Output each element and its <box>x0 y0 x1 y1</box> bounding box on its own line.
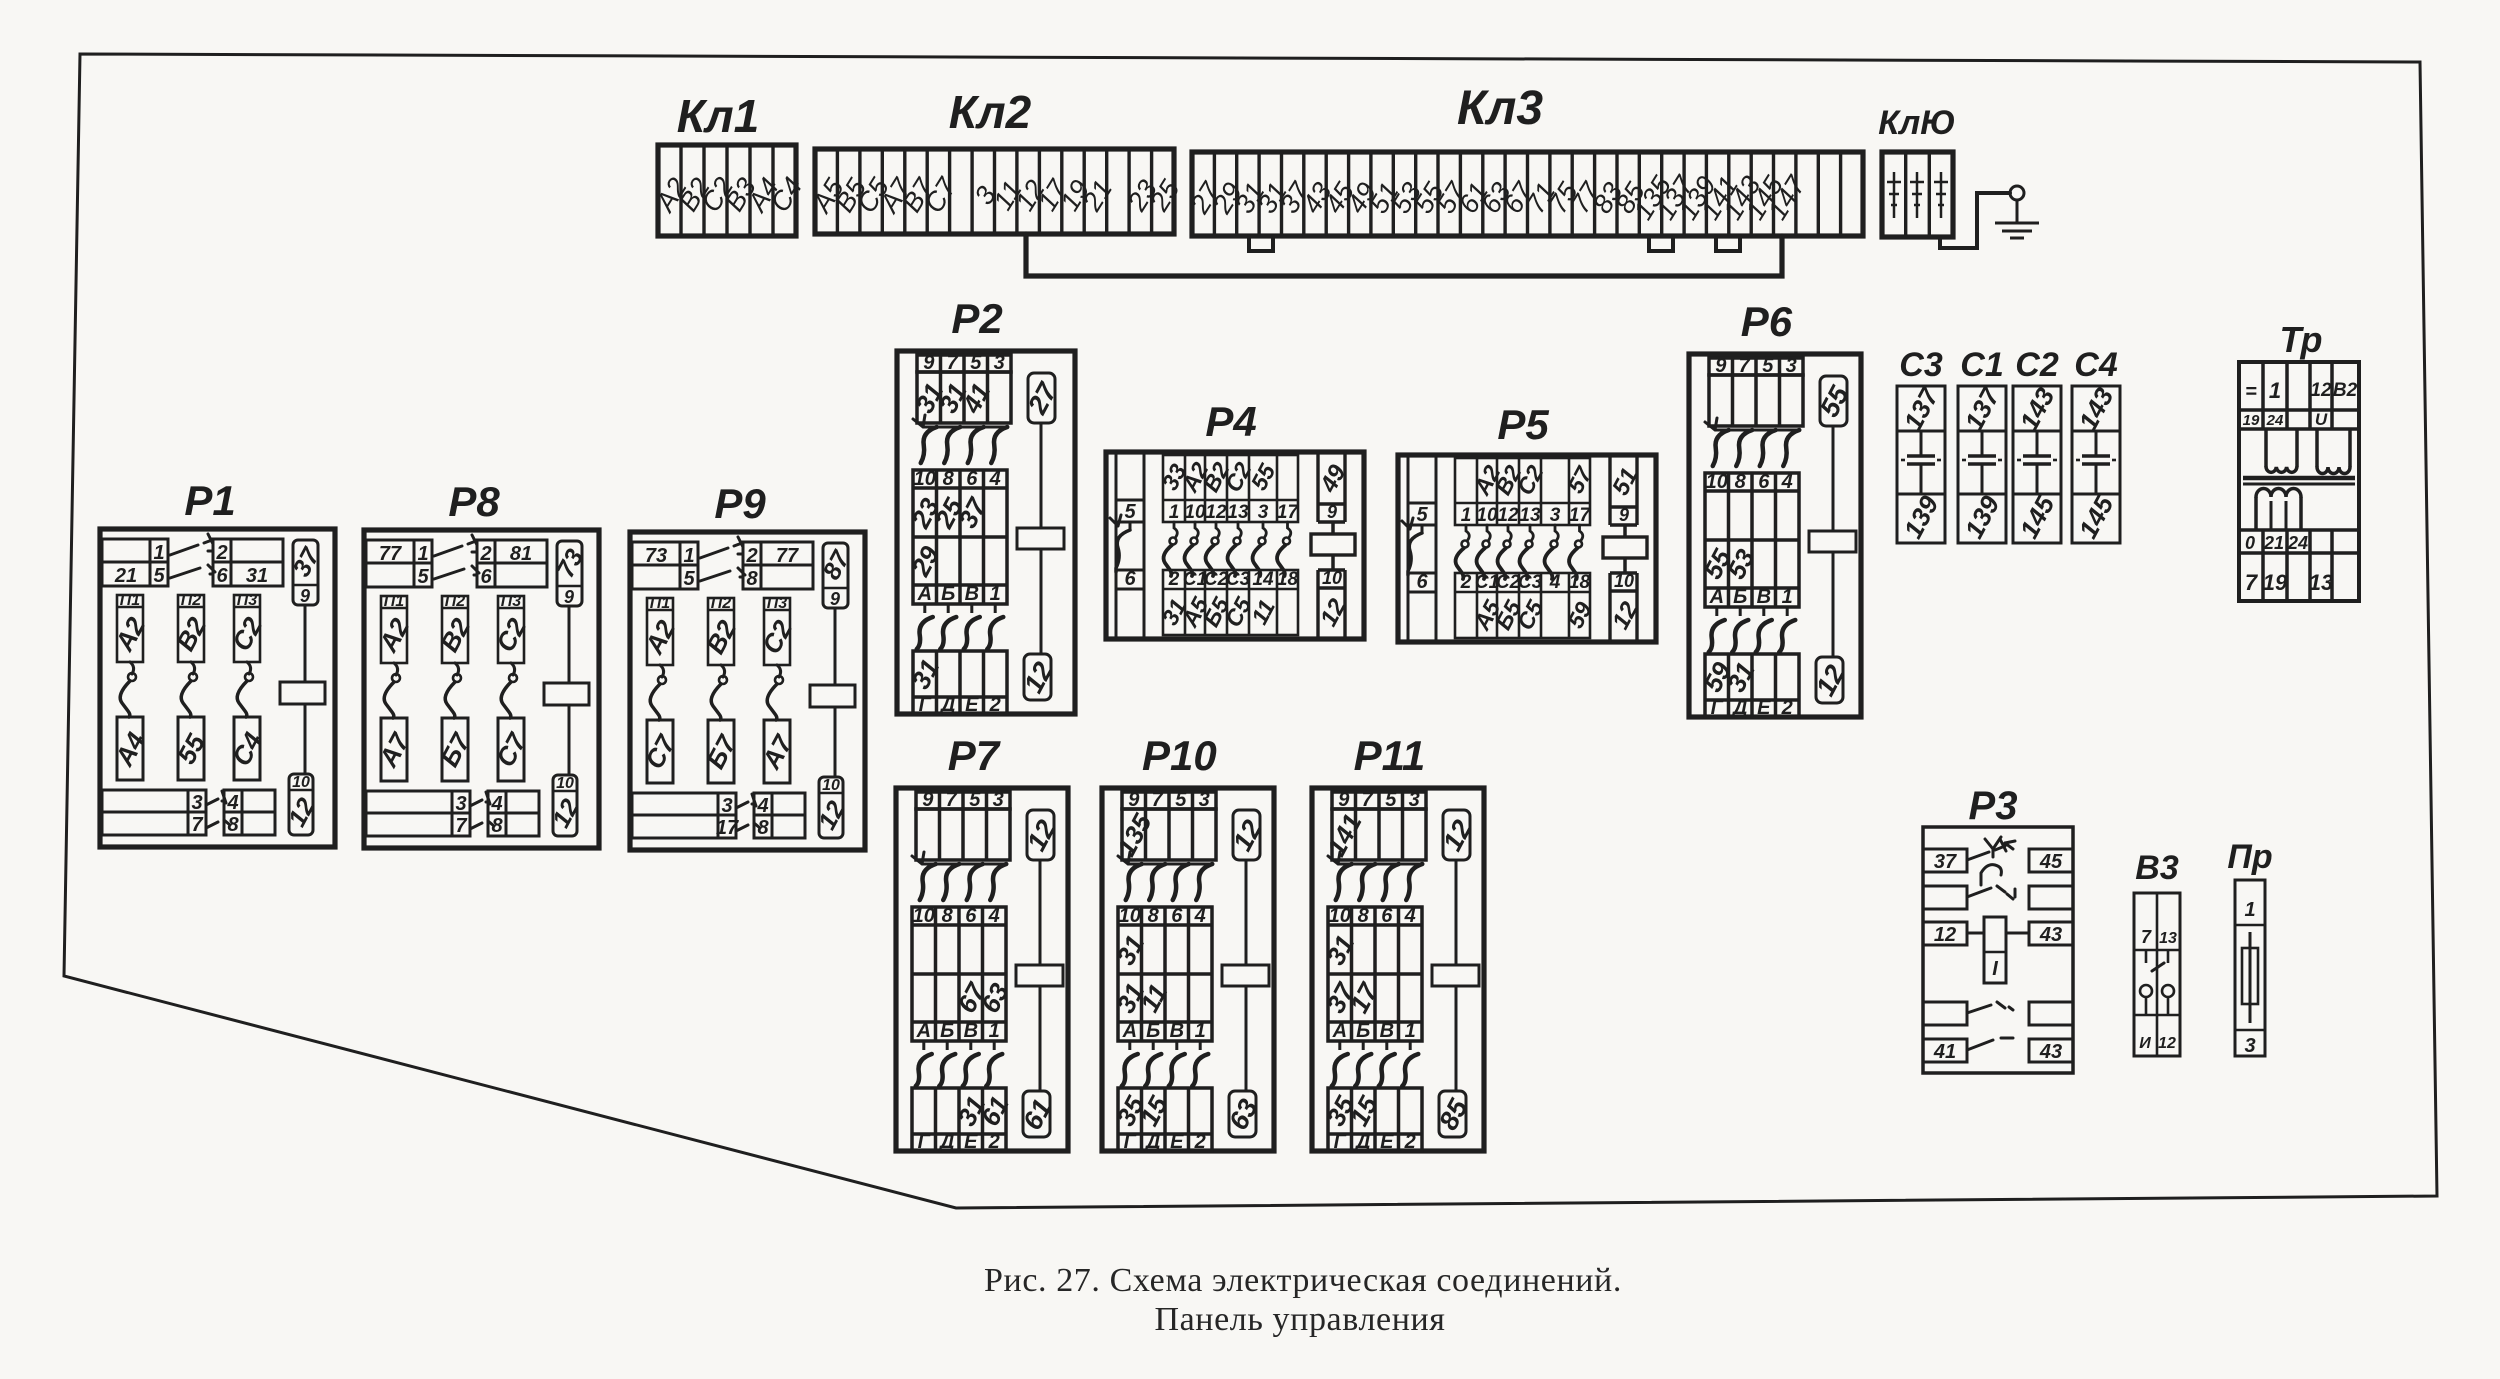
svg-text:3: 3 <box>191 792 202 814</box>
svg-text:Е: Е <box>964 1131 978 1153</box>
svg-text:7: 7 <box>2141 927 2152 947</box>
svg-text:31: 31 <box>246 565 268 587</box>
svg-text:8: 8 <box>943 468 955 490</box>
svg-text:А: А <box>1709 586 1724 608</box>
svg-text:Е: Е <box>1170 1131 1184 1153</box>
svg-text:12: 12 <box>1934 924 1956 946</box>
svg-text:13: 13 <box>1227 502 1249 523</box>
svg-text:19: 19 <box>2263 570 2288 595</box>
svg-text:12: 12 <box>1205 502 1227 523</box>
svg-text:73: 73 <box>645 545 667 567</box>
svg-text:5: 5 <box>153 565 165 587</box>
svg-text:3: 3 <box>455 793 466 815</box>
svg-text:Г: Г <box>1334 1131 1348 1153</box>
svg-text:1: 1 <box>1461 505 1472 526</box>
svg-text:Р10: Р10 <box>1142 732 1217 779</box>
svg-text:24: 24 <box>2287 533 2308 553</box>
svg-text:17: 17 <box>716 817 739 839</box>
svg-text:12: 12 <box>2310 380 2332 401</box>
svg-text:Е: Е <box>965 694 979 716</box>
svg-text:10: 10 <box>1119 905 1141 927</box>
svg-text:П3: П3 <box>501 593 522 610</box>
svg-text:Р3: Р3 <box>1969 784 2018 828</box>
svg-text:10: 10 <box>556 775 574 792</box>
svg-text:8: 8 <box>1148 905 1160 927</box>
svg-text:1: 1 <box>683 545 694 567</box>
svg-text:4: 4 <box>226 792 238 814</box>
svg-text:41: 41 <box>1933 1041 1956 1063</box>
svg-text:18: 18 <box>1277 569 1299 590</box>
svg-text:Д: Д <box>1354 1131 1370 1153</box>
svg-text:2: 2 <box>215 542 227 564</box>
svg-text:В: В <box>965 583 979 605</box>
svg-text:В: В <box>1380 1020 1394 1042</box>
svg-text:0: 0 <box>2245 533 2255 553</box>
svg-text:Р5: Р5 <box>1497 401 1549 448</box>
svg-text:Г: Г <box>1124 1131 1138 1153</box>
svg-text:Р8: Р8 <box>448 478 500 525</box>
svg-text:С3: С3 <box>1899 346 1943 384</box>
svg-text:П3: П3 <box>237 592 258 609</box>
svg-text:2: 2 <box>988 1131 1000 1153</box>
svg-text:4: 4 <box>490 793 502 815</box>
svg-text:Р9: Р9 <box>714 480 766 527</box>
svg-text:Д: Д <box>1731 697 1747 719</box>
svg-text:21: 21 <box>114 565 137 587</box>
svg-text:П1: П1 <box>120 592 141 609</box>
svg-text:10: 10 <box>1184 502 1206 523</box>
svg-text:8: 8 <box>746 568 758 590</box>
svg-text:3: 3 <box>2244 1035 2255 1057</box>
svg-text:I: I <box>1992 958 1998 980</box>
svg-text:В2: В2 <box>2333 380 2358 401</box>
svg-text:4: 4 <box>1549 572 1561 593</box>
svg-text:П1: П1 <box>650 595 671 612</box>
svg-text:77: 77 <box>776 545 799 567</box>
svg-text:Кл3: Кл3 <box>1457 82 1543 135</box>
svg-text:1: 1 <box>153 542 164 564</box>
svg-text:Тр: Тр <box>2279 319 2322 360</box>
svg-text:Е: Е <box>1380 1131 1394 1153</box>
svg-text:В: В <box>1170 1020 1184 1042</box>
svg-text:1: 1 <box>2244 899 2255 921</box>
svg-text:Б: Б <box>1356 1020 1370 1042</box>
svg-text:Б: Б <box>940 1020 954 1042</box>
svg-text:4: 4 <box>756 795 768 817</box>
svg-text:5: 5 <box>683 568 695 590</box>
svg-text:В: В <box>964 1020 978 1042</box>
svg-text:6: 6 <box>1416 571 1428 593</box>
svg-text:10: 10 <box>1322 568 1342 588</box>
svg-text:2: 2 <box>989 694 1001 716</box>
svg-text:=: = <box>2245 381 2257 403</box>
svg-text:9: 9 <box>1619 505 1629 525</box>
svg-text:9: 9 <box>564 587 574 607</box>
svg-text:Кл2: Кл2 <box>949 86 1032 138</box>
svg-text:21: 21 <box>2263 533 2284 553</box>
svg-text:П2: П2 <box>181 592 202 609</box>
svg-text:В3: В3 <box>2135 849 2179 887</box>
svg-text:10: 10 <box>1706 471 1728 493</box>
svg-text:1: 1 <box>417 543 428 565</box>
svg-text:Р7: Р7 <box>948 732 1001 779</box>
svg-text:П2: П2 <box>711 595 732 612</box>
svg-text:П1: П1 <box>384 593 405 610</box>
svg-text:Кл1: Кл1 <box>677 90 759 142</box>
svg-text:6: 6 <box>966 468 978 490</box>
svg-text:1: 1 <box>1169 502 1180 523</box>
svg-text:13: 13 <box>2309 570 2333 595</box>
svg-text:1: 1 <box>1405 1020 1416 1042</box>
svg-text:3: 3 <box>1258 502 1269 523</box>
svg-text:2: 2 <box>1460 572 1472 593</box>
svg-text:12: 12 <box>1497 505 1519 526</box>
svg-text:4: 4 <box>1194 905 1206 927</box>
svg-text:17: 17 <box>1277 502 1300 523</box>
svg-text:2: 2 <box>745 545 757 567</box>
svg-text:Б: Б <box>941 583 955 605</box>
svg-text:КлЮ: КлЮ <box>1878 104 1955 142</box>
svg-text:Рис. 27. Схема электрическая с: Рис. 27. Схема электрическая соединений. <box>984 1262 1622 1299</box>
svg-text:Р6: Р6 <box>1741 298 1793 345</box>
svg-text:1: 1 <box>1782 586 1793 608</box>
svg-text:1: 1 <box>990 583 1001 605</box>
svg-text:3: 3 <box>1550 505 1561 526</box>
svg-text:Б: Б <box>1733 586 1747 608</box>
svg-text:13: 13 <box>2159 930 2177 947</box>
svg-text:С4: С4 <box>2074 346 2118 384</box>
svg-text:2: 2 <box>1194 1131 1206 1153</box>
svg-text:Р11: Р11 <box>1354 732 1426 779</box>
svg-text:А: А <box>1332 1020 1347 1042</box>
svg-text:Р1: Р1 <box>184 477 235 524</box>
svg-text:А: А <box>1122 1020 1137 1042</box>
svg-text:6: 6 <box>1171 905 1183 927</box>
svg-text:С2: С2 <box>2015 346 2059 384</box>
svg-text:1: 1 <box>1195 1020 1206 1042</box>
svg-text:9: 9 <box>1327 502 1337 522</box>
svg-text:10: 10 <box>1476 505 1498 526</box>
svg-text:6: 6 <box>1758 471 1770 493</box>
svg-text:Б: Б <box>1146 1020 1160 1042</box>
svg-text:Е: Е <box>1757 697 1771 719</box>
svg-text:10: 10 <box>914 468 936 490</box>
svg-text:3: 3 <box>721 795 732 817</box>
svg-text:4: 4 <box>988 905 1000 927</box>
svg-text:19: 19 <box>2243 412 2260 429</box>
svg-text:10: 10 <box>292 774 310 791</box>
svg-text:37: 37 <box>1934 851 1957 873</box>
svg-text:Г: Г <box>919 694 933 716</box>
svg-text:Д: Д <box>1144 1131 1160 1153</box>
svg-text:С1: С1 <box>1960 346 2003 384</box>
svg-text:Г: Г <box>1711 697 1725 719</box>
svg-text:Р2: Р2 <box>951 295 1002 342</box>
svg-text:24: 24 <box>2266 412 2284 429</box>
svg-text:14: 14 <box>1252 569 1274 590</box>
svg-text:5: 5 <box>1124 501 1136 523</box>
svg-text:8: 8 <box>1735 471 1747 493</box>
svg-text:8: 8 <box>1358 905 1370 927</box>
svg-text:С3: С3 <box>1518 572 1543 593</box>
svg-text:6: 6 <box>965 905 977 927</box>
svg-text:И: И <box>2139 1035 2151 1052</box>
svg-text:6: 6 <box>480 566 492 588</box>
svg-text:10: 10 <box>913 905 935 927</box>
svg-text:2: 2 <box>1404 1131 1416 1153</box>
svg-text:П3: П3 <box>767 595 788 612</box>
svg-text:Д: Д <box>939 694 955 716</box>
svg-text:Р4: Р4 <box>1205 398 1256 445</box>
svg-text:45: 45 <box>2039 851 2063 873</box>
svg-text:2: 2 <box>1168 569 1180 590</box>
svg-text:4: 4 <box>1781 471 1793 493</box>
svg-text:2: 2 <box>479 543 491 565</box>
svg-text:А: А <box>917 583 932 605</box>
svg-text:13: 13 <box>1519 505 1541 526</box>
svg-text:6: 6 <box>1124 568 1136 590</box>
svg-text:Панель управления: Панель управления <box>1154 1301 1445 1338</box>
svg-text:Д: Д <box>938 1131 954 1153</box>
svg-text:7: 7 <box>455 815 467 837</box>
svg-text:43: 43 <box>2039 924 2062 946</box>
svg-text:10: 10 <box>1614 571 1634 591</box>
svg-text:4: 4 <box>1404 905 1416 927</box>
svg-text:П2: П2 <box>445 593 466 610</box>
svg-text:6: 6 <box>1381 905 1393 927</box>
svg-text:С3: С3 <box>1226 569 1251 590</box>
svg-text:10: 10 <box>1329 905 1351 927</box>
svg-text:5: 5 <box>417 566 429 588</box>
svg-text:77: 77 <box>379 543 402 565</box>
svg-text:7: 7 <box>191 814 203 836</box>
svg-text:12: 12 <box>2158 1035 2176 1052</box>
svg-text:10: 10 <box>822 777 840 794</box>
svg-text:6: 6 <box>216 565 228 587</box>
svg-text:9: 9 <box>300 586 310 606</box>
svg-text:1: 1 <box>2269 378 2281 403</box>
svg-text:5: 5 <box>1416 504 1428 526</box>
svg-text:4: 4 <box>989 468 1001 490</box>
svg-text:18: 18 <box>1569 572 1591 593</box>
svg-text:U: U <box>2315 410 2328 429</box>
svg-text:8: 8 <box>942 905 954 927</box>
svg-text:43: 43 <box>2039 1041 2062 1063</box>
svg-text:Пр: Пр <box>2227 838 2272 876</box>
svg-text:9: 9 <box>830 589 840 609</box>
svg-text:81: 81 <box>510 543 532 565</box>
svg-text:Г: Г <box>918 1131 932 1153</box>
svg-text:1: 1 <box>989 1020 1000 1042</box>
svg-text:В: В <box>1757 586 1771 608</box>
svg-text:7: 7 <box>2245 570 2259 595</box>
svg-text:17: 17 <box>1569 505 1592 526</box>
svg-text:2: 2 <box>1781 697 1793 719</box>
svg-text:А: А <box>916 1020 931 1042</box>
